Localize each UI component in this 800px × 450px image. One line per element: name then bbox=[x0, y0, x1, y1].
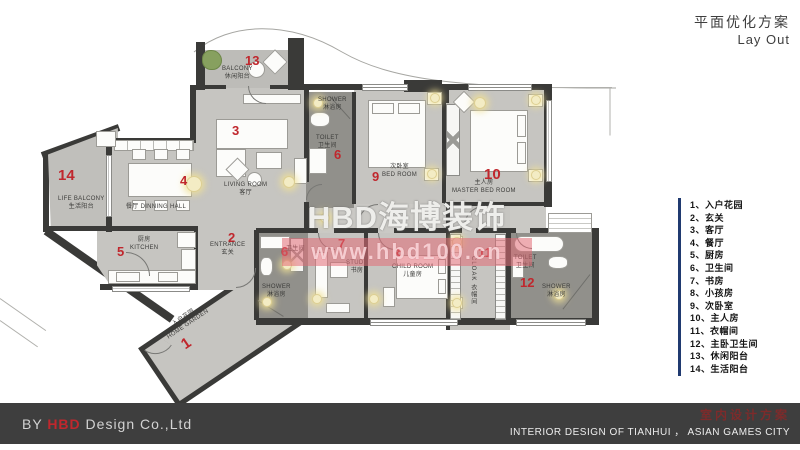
room-number-master-toilet: 12 bbox=[520, 276, 534, 289]
room-label-toilet-top: TOILET卫生间 bbox=[316, 135, 339, 151]
label-cn: 客厅 bbox=[239, 190, 252, 196]
wall-segment bbox=[364, 232, 368, 320]
room-label-toilet-mid-shower: SHOWER淋浴房 bbox=[262, 284, 291, 300]
page-title-en: Lay Out bbox=[694, 32, 790, 47]
label-cn: 衣帽间 bbox=[470, 284, 476, 305]
legend-item: 10、主人房 bbox=[690, 312, 758, 325]
legend-num: 6、 bbox=[690, 263, 705, 273]
label-en: DINNING HALL bbox=[141, 204, 187, 210]
wall-segment bbox=[254, 230, 259, 320]
legend-label: 衣帽间 bbox=[710, 326, 739, 336]
wall-segment bbox=[592, 228, 599, 325]
lamp bbox=[320, 213, 330, 223]
room-label-living: LIVING ROOM客厅 bbox=[224, 182, 267, 198]
label-cn: 卫生间 bbox=[318, 143, 337, 149]
ceiling-lamp bbox=[283, 176, 295, 188]
room-number-cloak: 11 bbox=[478, 246, 492, 259]
closet bbox=[495, 234, 506, 320]
label-en: SHOWER bbox=[262, 284, 291, 290]
room-label-toilet-mid: 卫生间 bbox=[286, 246, 305, 254]
side-table bbox=[294, 158, 307, 184]
window bbox=[112, 286, 190, 292]
legend-item: 2、玄关 bbox=[690, 212, 758, 225]
reference-line bbox=[552, 87, 612, 88]
dining-chair bbox=[132, 149, 146, 160]
label-en: LIVING ROOM bbox=[224, 182, 267, 188]
legend-label: 入户花园 bbox=[705, 200, 743, 210]
legend-num: 10、 bbox=[690, 313, 711, 323]
label-cn: 书房 bbox=[351, 268, 364, 274]
room-living-floor bbox=[196, 88, 306, 230]
desk bbox=[315, 252, 328, 298]
legend-label: 休闲阳台 bbox=[711, 351, 749, 361]
room-number-life-balcony: 14 bbox=[58, 168, 75, 183]
shoe-cabinet bbox=[290, 238, 304, 272]
room-number-bedroom: 9 bbox=[372, 170, 379, 183]
window bbox=[546, 100, 552, 182]
lamp bbox=[430, 93, 440, 103]
label-cn: 淋浴房 bbox=[323, 105, 342, 111]
door-gap bbox=[462, 228, 476, 233]
wardrobe bbox=[446, 104, 460, 176]
label-en: KITCHEN bbox=[130, 245, 158, 251]
wall-segment bbox=[288, 38, 304, 90]
lamp bbox=[452, 237, 462, 247]
lamp bbox=[474, 97, 486, 109]
label-cn: 餐厅 bbox=[126, 204, 139, 210]
legend-divider bbox=[678, 198, 681, 376]
label-cn: 玄关 bbox=[221, 250, 234, 256]
room-label-master-toilet-shower: SHOWER淋浴房 bbox=[542, 284, 571, 300]
toilet-bowl bbox=[260, 257, 273, 276]
room-number-kitchen: 5 bbox=[117, 245, 124, 258]
label-en: MASTER BED ROOM bbox=[452, 188, 516, 194]
label-cn: 淋浴房 bbox=[267, 292, 286, 298]
dining-chair bbox=[176, 149, 190, 160]
label-cn: 卫生间 bbox=[286, 246, 305, 252]
legend-item: 9、次卧室 bbox=[690, 300, 758, 313]
page-title-cn: 平面优化方案 bbox=[694, 12, 790, 32]
pillow bbox=[438, 259, 446, 274]
room-number-living: 3 bbox=[232, 124, 239, 137]
legend-item: 4、餐厅 bbox=[690, 237, 758, 250]
legend-item: 12、主卧卫生间 bbox=[690, 338, 758, 351]
window bbox=[106, 155, 112, 217]
wall-segment bbox=[270, 85, 306, 89]
footer-by: BY bbox=[22, 416, 47, 432]
wall-segment bbox=[256, 228, 598, 233]
label-cn: 主人房 bbox=[474, 180, 493, 186]
legend-item: 8、小孩房 bbox=[690, 287, 758, 300]
legend-item: 1、入户花园 bbox=[690, 199, 758, 212]
legend-item: 6、卫生间 bbox=[690, 262, 758, 275]
label-cn: 休闲阳台 bbox=[225, 74, 250, 80]
room-label-bedroom: 次卧室BED ROOM bbox=[382, 164, 417, 180]
wall-segment bbox=[352, 92, 356, 204]
sofa bbox=[216, 119, 288, 149]
label-cn: 卫生间 bbox=[516, 263, 535, 269]
legend-label: 主卧卫生间 bbox=[711, 339, 759, 349]
label-cn: 生活阳台 bbox=[69, 204, 94, 210]
cabinet bbox=[326, 303, 350, 313]
ac-platform bbox=[548, 213, 592, 233]
legend-label: 卫生间 bbox=[705, 263, 734, 273]
legend-num: 9、 bbox=[690, 301, 705, 311]
legend-num: 8、 bbox=[690, 288, 705, 298]
legend-num: 4、 bbox=[690, 238, 705, 248]
room-label-dining: 餐厅 DINNING HALL bbox=[126, 204, 186, 212]
legend-num: 2、 bbox=[690, 213, 705, 223]
label-cn: 淋浴房 bbox=[547, 292, 566, 298]
footer-company: Design Co.,Ltd bbox=[81, 416, 193, 432]
lamp bbox=[282, 260, 292, 270]
wall-segment bbox=[506, 228, 511, 323]
room-number-dining: 4 bbox=[180, 174, 187, 187]
footer-project-cn: 室内设计方案 bbox=[700, 406, 790, 423]
legend-label: 次卧室 bbox=[705, 301, 734, 311]
reference-line bbox=[610, 88, 611, 136]
window bbox=[370, 319, 458, 326]
room-label-child: CHILD ROOM儿童房 bbox=[392, 264, 433, 280]
window bbox=[362, 84, 408, 91]
label-en: TOILET bbox=[316, 135, 339, 141]
legend-label: 玄关 bbox=[705, 213, 724, 223]
legend-num: 3、 bbox=[690, 225, 705, 235]
wall-segment bbox=[43, 156, 49, 232]
footer-brand: HBD bbox=[47, 416, 80, 432]
label-cn: 厨房 bbox=[138, 237, 151, 243]
wall-segment bbox=[444, 202, 546, 206]
room-number-study: 7 bbox=[338, 237, 345, 250]
label-en: BALCONY bbox=[222, 66, 253, 72]
washer bbox=[96, 131, 116, 147]
wall-segment bbox=[48, 226, 120, 231]
legend-label: 书房 bbox=[705, 276, 724, 286]
label-en: TOILET bbox=[514, 255, 537, 261]
legend-num: 7、 bbox=[690, 276, 705, 286]
toilet-bowl bbox=[310, 112, 330, 127]
legend-num: 11、 bbox=[690, 326, 710, 336]
kitchen-cabinet bbox=[181, 249, 196, 270]
pillow bbox=[438, 279, 446, 294]
room-label-master-toilet: TOILET卫生间 bbox=[514, 255, 537, 271]
legend-label: 厨房 bbox=[705, 250, 724, 260]
pillow bbox=[398, 103, 420, 114]
legend-label: 生活阳台 bbox=[711, 364, 749, 374]
plant bbox=[202, 50, 222, 70]
room-label-study: STUDY书房 bbox=[346, 260, 368, 276]
label-cn: 儿童房 bbox=[403, 272, 422, 278]
room-number-child: 8 bbox=[396, 245, 403, 258]
lamp bbox=[369, 294, 379, 304]
legend-label: 客厅 bbox=[705, 225, 724, 235]
kitchen-stove bbox=[158, 272, 178, 282]
coffee-table bbox=[256, 152, 282, 169]
legend-label: 主人房 bbox=[711, 313, 740, 323]
footer-bar: BY HBD Design Co.,Ltd 室内设计方案 INTERIOR DE… bbox=[0, 403, 800, 444]
legend-label: 餐厅 bbox=[705, 238, 724, 248]
footer-credit: BY HBD Design Co.,Ltd bbox=[22, 416, 192, 432]
desk bbox=[383, 287, 395, 307]
slide-canvas: { "title": {"cn": "平面优化方案", "en": "Lay O… bbox=[0, 0, 800, 450]
legend-item: 14、生活阳台 bbox=[690, 363, 758, 376]
fridge bbox=[177, 232, 196, 248]
toilet-bowl bbox=[548, 256, 568, 269]
label-en: BED ROOM bbox=[382, 172, 417, 178]
pillow bbox=[517, 142, 526, 164]
wall-segment bbox=[404, 80, 442, 92]
legend-label: 小孩房 bbox=[705, 288, 734, 298]
room-label-master: 主人房MASTER BED ROOM bbox=[452, 180, 516, 196]
legend-list: 1、入户花园 2、玄关 3、客厅 4、餐厅 5、厨房 6、卫生间 7、书房 8、… bbox=[690, 199, 758, 375]
page-title: 平面优化方案 Lay Out bbox=[694, 12, 790, 47]
room-label-cloak: CLOAK 衣帽间 bbox=[468, 256, 476, 305]
label-en: LIFE BALCONY bbox=[58, 196, 105, 202]
lamp bbox=[312, 294, 322, 304]
washbasin bbox=[309, 148, 327, 174]
pillow bbox=[517, 115, 526, 137]
lamp bbox=[427, 169, 437, 179]
lamp bbox=[452, 298, 462, 308]
legend-num: 12、 bbox=[690, 339, 711, 349]
legend-item: 7、书房 bbox=[690, 275, 758, 288]
window bbox=[516, 319, 586, 326]
pillow bbox=[372, 103, 394, 114]
legend-num: 14、 bbox=[690, 364, 711, 374]
legend-item: 3、客厅 bbox=[690, 224, 758, 237]
wall-segment bbox=[196, 85, 226, 89]
legend-num: 13、 bbox=[690, 351, 711, 361]
dining-chair bbox=[154, 149, 168, 160]
label-en: ENTRANCE bbox=[210, 242, 245, 248]
footer-project-en: INTERIOR DESIGN OF TIANHUI ， ASIAN GAMES… bbox=[510, 423, 790, 438]
label-en: CHILD ROOM bbox=[392, 264, 433, 270]
label-en: SHOWER bbox=[318, 97, 347, 103]
room-label-toilet-top-shower: SHOWER淋浴房 bbox=[318, 97, 347, 113]
room-label-balcony: BALCONY休闲阳台 bbox=[222, 66, 253, 82]
wall-segment bbox=[190, 85, 196, 143]
label-cn: 次卧室 bbox=[390, 164, 409, 170]
legend-item: 11、衣帽间 bbox=[690, 325, 758, 338]
window bbox=[468, 84, 532, 91]
room-label-entrance: ENTRANCE玄关 bbox=[210, 242, 245, 258]
label-en: SHOWER bbox=[542, 284, 571, 290]
room-label-kitchen: 厨房KITCHEN bbox=[130, 237, 158, 253]
legend-num: 1、 bbox=[690, 200, 705, 210]
legend-num: 5、 bbox=[690, 250, 705, 260]
lamp bbox=[531, 95, 541, 105]
legend-item: 5、厨房 bbox=[690, 249, 758, 262]
ceiling-lamp bbox=[186, 176, 202, 192]
label-en: CLOAK bbox=[470, 256, 476, 281]
lamp bbox=[531, 170, 541, 180]
label-en: STUDY bbox=[346, 260, 368, 266]
room-label-life-balcony: LIFE BALCONY生活阳台 bbox=[58, 196, 105, 212]
dimension-line bbox=[0, 320, 38, 347]
legend-item: 13、休闲阳台 bbox=[690, 350, 758, 363]
